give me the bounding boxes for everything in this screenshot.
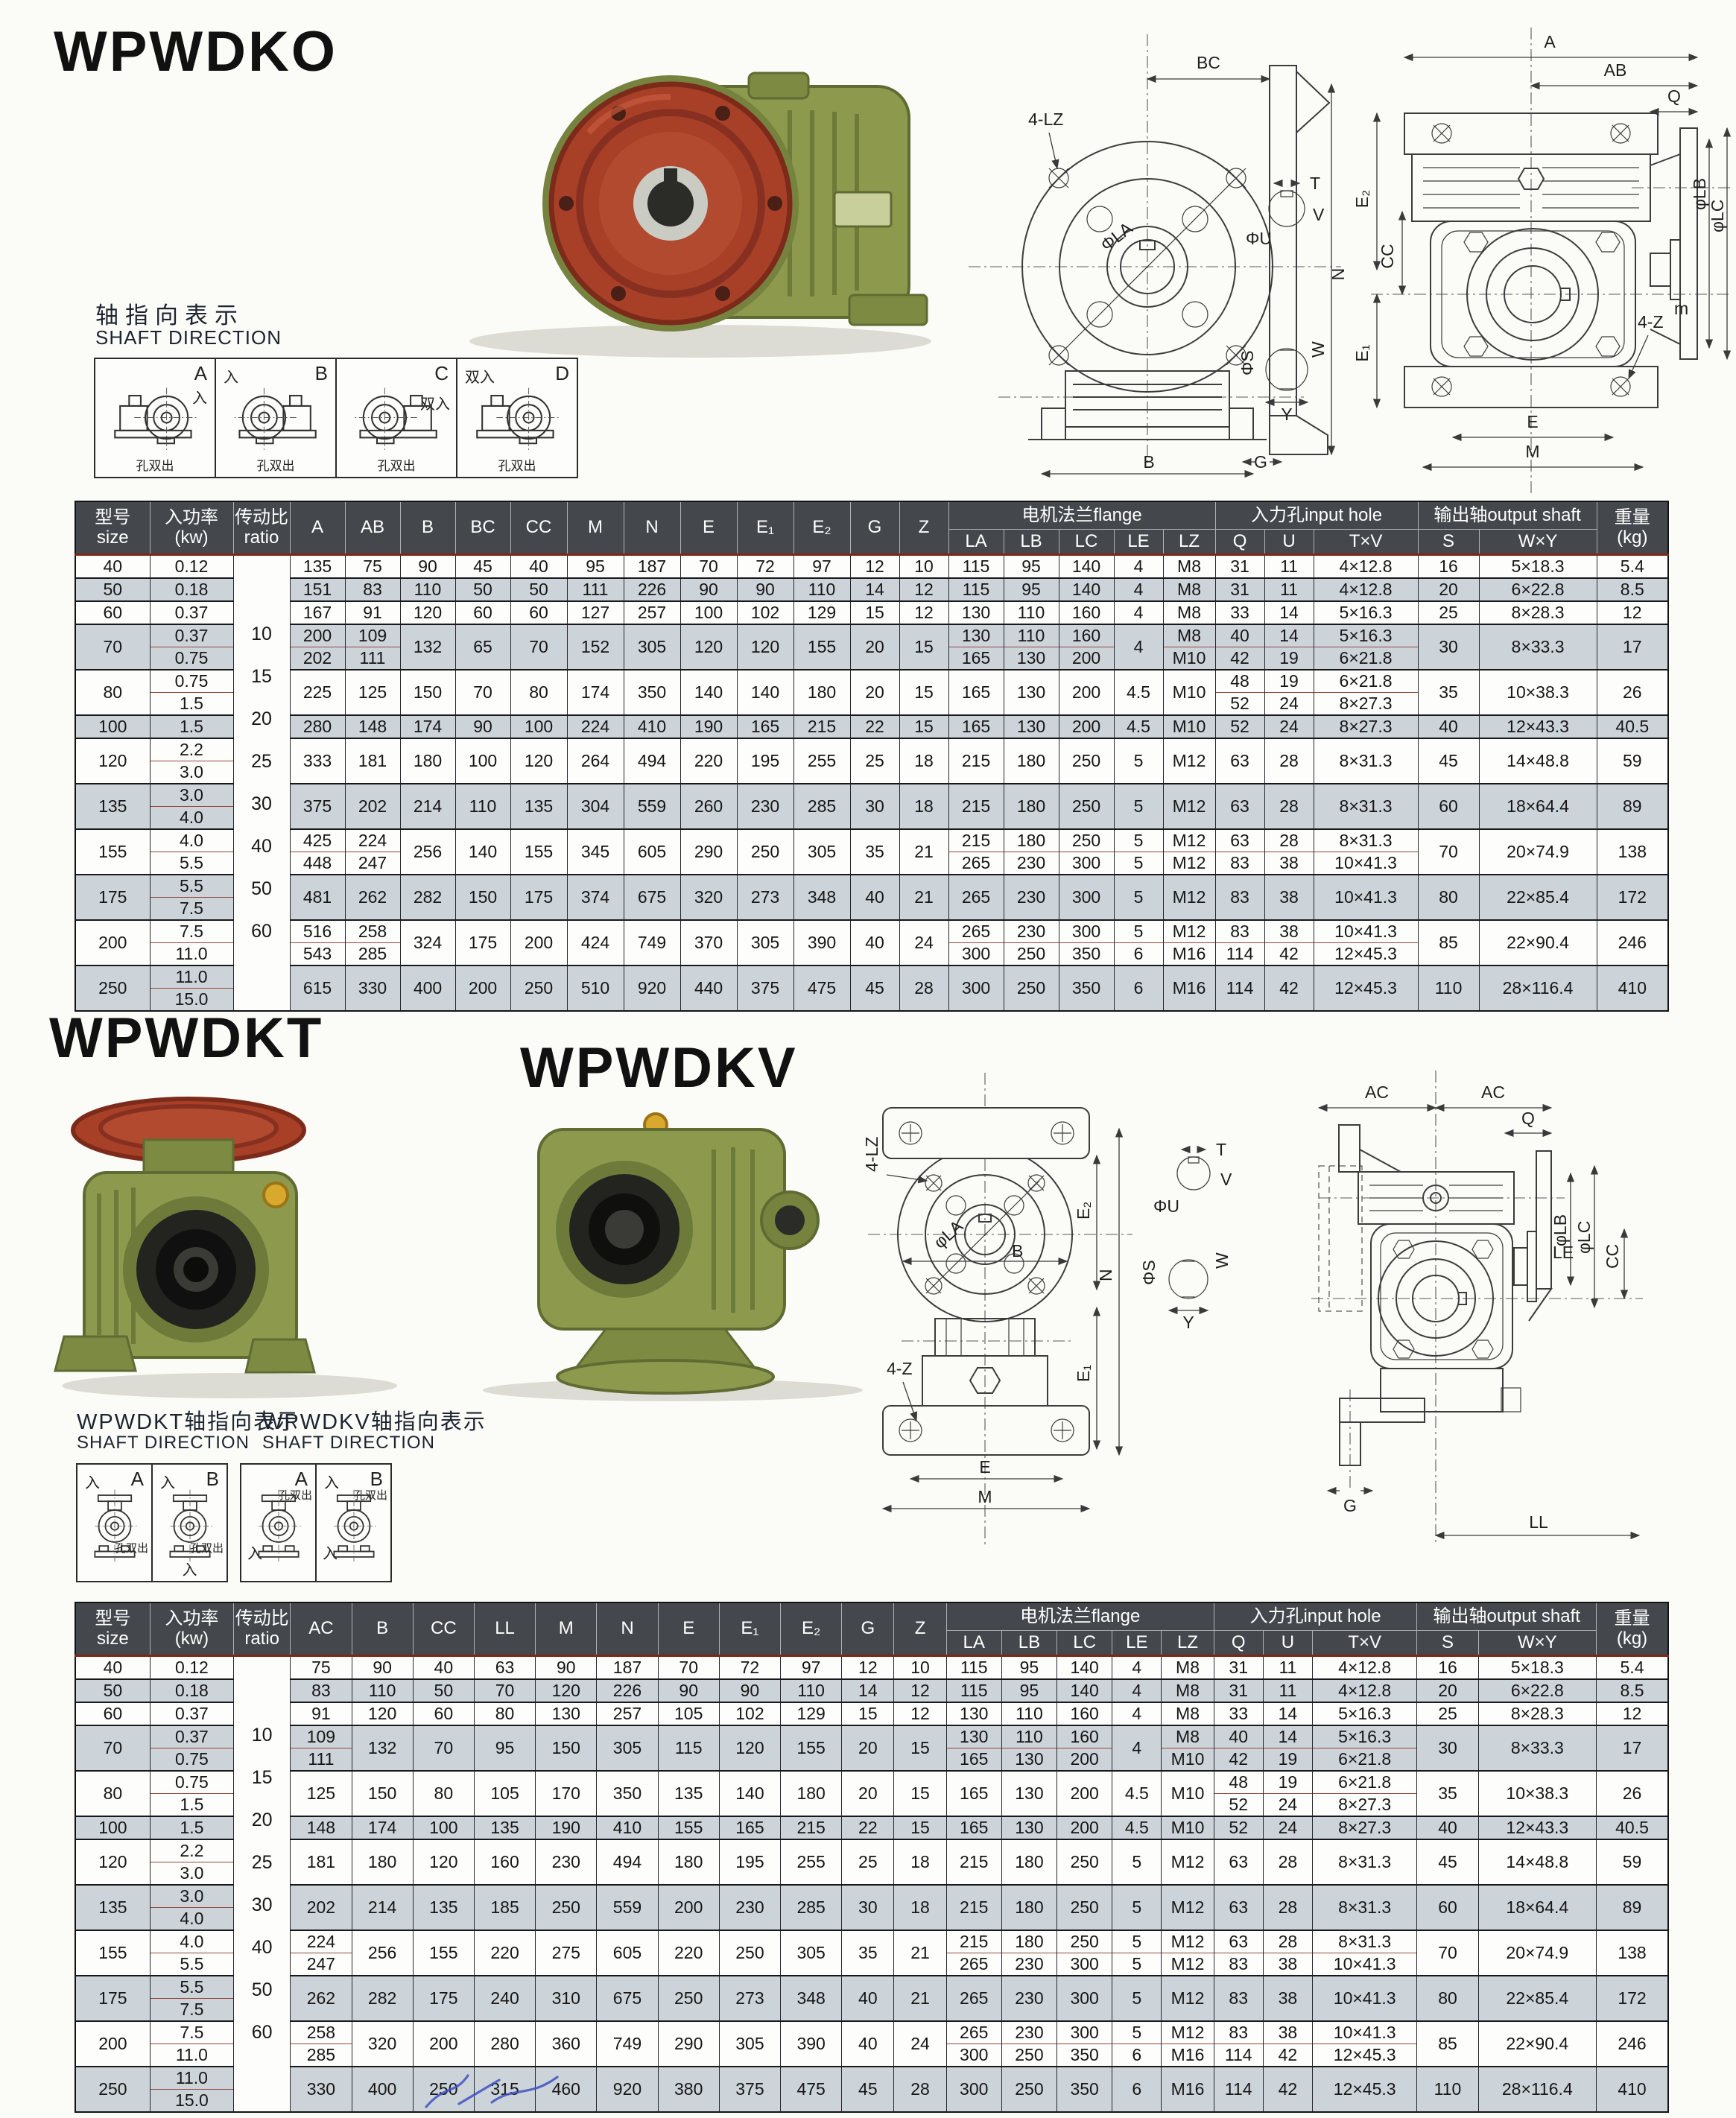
table-cell: 165	[946, 1816, 1001, 1839]
table-cell: 0.75	[150, 1771, 233, 1794]
table-cell: 448	[290, 852, 345, 875]
table-cell: 3.0	[150, 784, 233, 807]
table-cell: 12	[1597, 601, 1668, 624]
table-cell: 12×45.3	[1312, 2067, 1416, 2112]
table-cell: 246	[1597, 920, 1668, 966]
table-cell: 8×31.3	[1312, 1930, 1416, 1953]
table-cell: 170	[536, 1771, 597, 1816]
table-cell: 200	[413, 2021, 474, 2067]
dim-label-phis: ΦS	[1238, 350, 1257, 375]
table-cell: 190	[680, 715, 737, 738]
table-cell: 35	[1417, 1771, 1478, 1816]
table-cell: 114	[1214, 2044, 1263, 2067]
gearbox-schematic-icon	[230, 381, 321, 459]
table-cell: 675	[597, 1976, 658, 2021]
table-cell: 230	[719, 1885, 780, 1930]
table-cell: 226	[597, 1679, 658, 1702]
table-cell: 52	[1214, 1816, 1263, 1839]
dim-label-4lz: 4-LZ	[1028, 110, 1063, 129]
table-cell: 4.0	[150, 829, 233, 852]
table-cell: 224	[567, 715, 624, 738]
table-cell: M12	[1163, 738, 1215, 784]
table-cell: 202	[290, 647, 345, 670]
table-cell: 48	[1215, 670, 1264, 693]
table-cell: 195	[737, 738, 793, 784]
table-cell: 59	[1597, 1839, 1668, 1885]
table-cell: 140	[455, 829, 510, 875]
table-cell: 250	[1001, 2067, 1057, 2112]
table-cell: 264	[567, 738, 624, 784]
table-cell: 100	[680, 601, 737, 624]
table-cell: 320	[680, 875, 737, 920]
table-cell: 265	[948, 920, 1004, 943]
dim-label-m: M	[978, 1487, 992, 1506]
table-cell: 15	[899, 670, 948, 715]
dim-label-b: B	[1012, 1241, 1023, 1261]
table-cell: 256	[352, 1930, 413, 1976]
table-cell: 494	[597, 1839, 658, 1885]
table-cell: 215	[946, 1839, 1001, 1885]
table-cell: 85	[1418, 920, 1479, 966]
table-cell: 180	[1001, 1930, 1057, 1953]
table-cell: 605	[597, 1930, 658, 1976]
table-cell: 2.2	[150, 1839, 233, 1862]
table-cell: 214	[400, 784, 455, 829]
table-cell: 40.5	[1597, 1816, 1668, 1839]
table-cell: 72	[737, 555, 793, 579]
table-cell: 2.2	[150, 738, 233, 761]
table-cell: 5.5	[150, 852, 233, 875]
table-cell: 155	[75, 829, 150, 875]
table-cell: 6×21.8	[1312, 1748, 1416, 1772]
column-header: W×Y	[1478, 1631, 1596, 1656]
dim-label-n: N	[1096, 1269, 1115, 1281]
table-cell: 6	[1114, 943, 1163, 966]
table-cell: 215	[948, 738, 1004, 784]
table-cell: 70	[1417, 1930, 1478, 1976]
table-cell: M12	[1163, 875, 1215, 920]
table-cell: 95	[567, 555, 624, 579]
table-cell: 109	[345, 624, 400, 647]
gearbox-schematic-icon	[326, 1485, 381, 1565]
table-cell: 85	[1417, 2021, 1478, 2067]
table-cell: 375	[290, 784, 345, 829]
table-cell: 200	[1059, 715, 1114, 738]
table-cell: 305	[597, 1725, 658, 1771]
table-cell: M12	[1162, 1953, 1214, 1976]
shaft-direction-cell-d: D 双入 孔双出	[457, 359, 577, 477]
table-cell: M10	[1162, 1748, 1214, 1772]
table-cell: 114	[1215, 966, 1264, 1011]
table-cell: 97	[781, 1656, 842, 1680]
column-header: M	[567, 501, 624, 555]
table-cell: 330	[345, 966, 400, 1011]
column-header: 输出轴output shaft	[1417, 1602, 1597, 1631]
table-cell: 4.0	[150, 1930, 233, 1953]
table-cell: 19	[1264, 647, 1314, 670]
table-cell: 275	[536, 1930, 597, 1976]
table-cell: 130	[1004, 670, 1059, 715]
table-cell: 180	[1004, 738, 1059, 784]
table-cell: 15.0	[150, 2090, 233, 2113]
table-cell: 240	[474, 1976, 535, 2021]
table-cell: 516	[290, 920, 345, 943]
dim-label-philc: φLC	[1574, 1221, 1594, 1254]
table-cell: 175	[75, 1976, 150, 2021]
table-cell: 70	[75, 1725, 150, 1771]
table-cell: 132	[352, 1725, 413, 1771]
table-cell: 140	[719, 1771, 780, 1816]
table-cell: 135	[658, 1771, 719, 1816]
table-cell: 4	[1112, 1725, 1162, 1771]
table-cell: 28	[1263, 1885, 1312, 1930]
dim-label-e2: E₂	[1074, 1202, 1093, 1220]
table-cell: 0.18	[150, 1679, 233, 1702]
table-cell: 265	[948, 852, 1004, 875]
table-cell: 12×45.3	[1312, 2044, 1416, 2067]
table-cell: 83	[291, 1679, 352, 1702]
table-cell: 60	[75, 1702, 150, 1725]
gearbox-schematic-icon	[472, 381, 563, 459]
table-cell: 180	[781, 1771, 842, 1816]
table-cell: 20×74.9	[1478, 1930, 1596, 1976]
table-cell: 250	[1001, 2044, 1057, 2067]
table-cell: 247	[291, 1953, 352, 1976]
table-cell: 1.5	[150, 715, 233, 738]
table-cell: 45	[1417, 1839, 1478, 1885]
table-cell: 40.5	[1597, 715, 1668, 738]
table-cell: 167	[290, 601, 345, 624]
table-cell: 120	[413, 1839, 474, 1885]
table-cell: 7.5	[150, 1999, 233, 2022]
table-cell: 95	[1004, 555, 1059, 579]
table-cell: 80	[75, 1771, 150, 1816]
table-cell: 305	[781, 1930, 842, 1976]
table-cell: 215	[948, 784, 1004, 829]
table-cell: 63	[1215, 784, 1264, 829]
table-cell: 17	[1597, 624, 1668, 670]
shaft-direction-heading-wpwdkv-en: SHAFT DIRECTION	[262, 1433, 435, 1453]
table-cell: 250	[510, 966, 567, 1011]
table-cell: M12	[1162, 1839, 1214, 1885]
column-header: LE	[1114, 530, 1163, 555]
table-cell: 18	[894, 1839, 946, 1885]
table-cell: 160	[474, 1839, 535, 1885]
table-cell: 100	[510, 715, 567, 738]
column-header: B	[352, 1602, 413, 1656]
table-cell: 200	[1059, 670, 1114, 715]
table-cell: 481	[290, 875, 345, 920]
table-cell: 140	[1057, 1679, 1112, 1702]
column-header: BC	[455, 501, 510, 555]
table-cell: 70	[413, 1725, 474, 1771]
table-cell: 22×85.4	[1479, 875, 1597, 920]
table-cell: 615	[290, 966, 345, 1011]
table-cell: 90	[658, 1679, 719, 1702]
table-cell: 257	[624, 601, 680, 624]
table-cell: 175	[413, 1976, 474, 2021]
table-cell: 160	[1057, 1702, 1112, 1725]
dim-label-g: G	[1254, 452, 1267, 472]
table-cell: 25	[1418, 601, 1479, 624]
table-cell: 31	[1215, 578, 1264, 601]
table-cell: 8×33.3	[1478, 1725, 1596, 1771]
column-header: B	[400, 501, 455, 555]
table-cell: 8×31.3	[1312, 1839, 1416, 1885]
table-cell: 70	[75, 624, 150, 670]
table-cell: 4	[1112, 1679, 1162, 1702]
table-cell: 24	[894, 2021, 946, 2067]
table-cell: 63	[1214, 1885, 1263, 1930]
table-cell: 3.0	[150, 1862, 233, 1886]
table-cell: 90	[400, 555, 455, 579]
column-header: LZ	[1162, 1631, 1214, 1656]
table-cell: M16	[1163, 966, 1215, 1011]
table-cell: M10	[1162, 1771, 1214, 1816]
table-cell: 215	[781, 1816, 842, 1839]
table-cell: 19	[1263, 1771, 1312, 1794]
table-cell: 375	[719, 2067, 780, 2112]
table-cell: 89	[1597, 1885, 1668, 1930]
table-cell: 45	[455, 555, 510, 579]
breather-plug	[264, 1183, 288, 1207]
output-caption: 孔双出	[337, 455, 456, 474]
table-cell: 80	[474, 1702, 535, 1725]
table-cell: 130	[948, 601, 1004, 624]
table-cell: 202	[291, 1885, 352, 1930]
dim-label-e1: E₁	[1074, 1365, 1093, 1382]
table-cell: 257	[597, 1702, 658, 1725]
table-cell: 120	[536, 1679, 597, 1702]
table-cell: 1.5	[150, 693, 233, 716]
table-cell: 675	[624, 875, 680, 920]
table-cell: 20	[1418, 578, 1479, 601]
table-cell: 130	[1001, 1816, 1057, 1839]
table-cell: 130	[1004, 647, 1059, 670]
column-header: E	[658, 1602, 719, 1656]
table-cell: 180	[1001, 1885, 1057, 1930]
dim-label-4z: 4-Z	[887, 1359, 913, 1378]
table-cell: 40	[75, 1656, 150, 1680]
table-cell: 83	[1214, 1976, 1263, 2021]
table-cell: 60	[1417, 1885, 1478, 1930]
column-header: CC	[413, 1602, 474, 1656]
product-photo-wpwdko	[417, 43, 954, 364]
table-cell: 15	[894, 1771, 946, 1816]
table-cell: 38	[1263, 2021, 1312, 2044]
table-cell: 50	[75, 578, 150, 601]
table-cell: 300	[1059, 875, 1114, 920]
table-cell: 14	[1263, 1725, 1312, 1748]
dim-label-v: V	[1220, 1170, 1232, 1189]
table-cell: 285	[781, 1885, 842, 1930]
table-cell: 0.75	[150, 647, 233, 670]
table-cell: 42	[1264, 966, 1314, 1011]
table-cell: 4×12.8	[1312, 1679, 1416, 1702]
gearbox-schematic-icon	[351, 381, 442, 459]
shaft-direction-cell-b: B 入 入 孔双出	[153, 1465, 226, 1581]
table-cell: 150	[400, 670, 455, 715]
table-cell: 187	[597, 1656, 658, 1680]
table-cell: 45	[1418, 738, 1479, 784]
table-cell: 440	[680, 966, 737, 1011]
table-cell: 38	[1263, 1976, 1312, 2021]
output-caption: 孔双出	[115, 1540, 148, 1556]
table-cell: 91	[291, 1702, 352, 1725]
table-cell: 10×41.3	[1312, 1976, 1416, 2021]
handwritten-mark	[416, 2070, 587, 2116]
table-cell: 19	[1263, 1748, 1312, 1772]
table-cell: 140	[1059, 578, 1114, 601]
table-cell: 200	[658, 1885, 719, 1930]
technical-drawing-wpwdko-front: BC 4-LZ ΦLA N G B T V ΦU ΦS W Y	[954, 21, 1349, 479]
table-cell: 345	[567, 829, 624, 875]
dim-label-cc: CC	[1378, 244, 1397, 268]
table-cell: 18×64.4	[1479, 784, 1597, 829]
table-cell: 5	[1112, 1953, 1162, 1976]
table-cell: 38	[1264, 920, 1314, 943]
table-cell: M10	[1163, 715, 1215, 738]
table-cell: 559	[624, 784, 680, 829]
table-cell: 75	[291, 1656, 352, 1680]
table-cell: 12	[899, 601, 948, 624]
table-cell: 202	[345, 784, 400, 829]
table-cell: 115	[948, 555, 1004, 579]
dim-label-ab: AB	[1604, 60, 1627, 80]
table-cell: M8	[1162, 1702, 1214, 1725]
table-cell: 250	[75, 2067, 150, 2112]
column-header: E₁	[719, 1602, 780, 1656]
table-cell: 4×12.8	[1312, 1656, 1416, 1680]
table-cell: 30	[1417, 1725, 1478, 1771]
table-cell: 200	[1059, 647, 1114, 670]
dim-label-cc: CC	[1603, 1244, 1622, 1269]
table-cell: 10	[899, 555, 948, 579]
table-cell: 200	[510, 920, 567, 966]
catalog-page: WPWDKO	[0, 0, 1736, 2118]
table-cell: 148	[345, 715, 400, 738]
table-cell: 10×41.3	[1314, 920, 1418, 943]
dim-label-t: T	[1216, 1140, 1226, 1159]
table-cell: M12	[1162, 1885, 1214, 1930]
table-cell: 180	[1004, 829, 1059, 852]
table-cell: 4	[1112, 1656, 1162, 1680]
table-cell: 220	[658, 1930, 719, 1976]
table-cell: 3.0	[150, 761, 233, 784]
table-cell: 95	[1001, 1656, 1057, 1680]
table-cell: 0.75	[150, 670, 233, 693]
table-cell: 115	[948, 578, 1004, 601]
table-cell: 110	[1417, 2067, 1478, 2112]
table-cell: 258	[345, 920, 400, 943]
table-cell: 165	[948, 715, 1004, 738]
table-cell: 114	[1214, 2067, 1263, 2112]
table-cell: 38	[1264, 875, 1314, 920]
column-header: CC	[510, 501, 567, 555]
table-cell: 200	[75, 920, 150, 966]
shaft-direction-cell-c: C 双入 孔双出	[337, 359, 457, 477]
table-cell: 10×41.3	[1312, 2021, 1416, 2044]
table-cell: 70	[474, 1679, 535, 1702]
table-cell: 24	[899, 920, 948, 966]
output-bore	[647, 180, 694, 226]
table-cell: 83	[1215, 920, 1264, 943]
table-cell: 230	[1004, 875, 1059, 920]
table-cell: 40	[75, 555, 150, 579]
column-header: 传动比ratio	[233, 501, 290, 555]
table-cell: 8×31.3	[1314, 784, 1418, 829]
table-cell: M12	[1163, 852, 1215, 875]
column-header: 入力孔input hole	[1215, 501, 1418, 530]
table-cell: 282	[352, 1976, 413, 2021]
table-cell: 165	[948, 670, 1004, 715]
dim-label-phiu: ΦU	[1153, 1196, 1179, 1216]
table-cell: 60	[413, 1702, 474, 1725]
table-cell: 115	[658, 1725, 719, 1771]
page-title-wpwdko: WPWDKO	[54, 19, 338, 84]
table-cell: 105	[658, 1702, 719, 1725]
table-cell: M12	[1162, 2021, 1214, 2044]
table-cell: 60	[510, 601, 567, 624]
table-cell: 45	[842, 2067, 894, 2112]
table-cell: 226	[624, 578, 680, 601]
table-cell: 12×43.3	[1479, 715, 1597, 738]
output-caption: 孔双出	[457, 455, 577, 474]
table-cell: 256	[400, 829, 455, 875]
table-cell: 21	[894, 1930, 946, 1976]
table-cell: 28	[1263, 1839, 1312, 1885]
table-cell: 8×28.3	[1479, 601, 1597, 624]
table-cell: 175	[510, 875, 567, 920]
table-cell: 63	[474, 1656, 535, 1680]
table-cell: 250	[75, 966, 150, 1011]
column-header: LE	[1112, 1631, 1162, 1656]
table-cell: 14×48.8	[1479, 738, 1597, 784]
table-cell: 200	[1057, 1771, 1112, 1816]
table-cell: 70	[455, 670, 510, 715]
table-cell: 200	[455, 966, 510, 1011]
shaft-direction-panel-wpwdkv: A 孔双出 入 B 入 孔双出 入	[240, 1463, 392, 1582]
table-cell: 0.37	[150, 1725, 233, 1748]
table-cell: 15	[899, 624, 948, 670]
table-cell: 350	[1057, 2044, 1112, 2067]
table-cell: 749	[597, 2021, 658, 2067]
table-cell: 0.75	[150, 1748, 233, 1772]
table-cell: 110	[1001, 1702, 1057, 1725]
table-cell: 50	[413, 1679, 474, 1702]
table-cell: 14	[850, 578, 899, 601]
table-cell: 155	[413, 1930, 474, 1976]
table-cell: 180	[1004, 784, 1059, 829]
column-header: 入功率(kw)	[150, 501, 233, 555]
shaft-direction-cell-a: A 孔双出 入	[241, 1465, 317, 1581]
table-cell: 0.12	[150, 1656, 233, 1680]
dim-label-phila: φLA	[930, 1216, 967, 1252]
table-cell: 230	[1001, 2021, 1057, 2044]
table-cell: 11.0	[150, 943, 233, 966]
table-cell: 70	[510, 624, 567, 670]
table-cell: 15	[899, 715, 948, 738]
column-header: 型号size	[75, 501, 150, 555]
column-header: AB	[345, 501, 400, 555]
table-cell: 28×116.4	[1479, 966, 1597, 1011]
table-cell: 40	[510, 555, 567, 579]
table-cell: 5	[1112, 1930, 1162, 1953]
table-cell: 324	[400, 920, 455, 966]
table-cell: 25	[842, 1839, 894, 1885]
product-photo-wpwdkt	[43, 1067, 423, 1402]
table-cell: 348	[793, 875, 850, 920]
